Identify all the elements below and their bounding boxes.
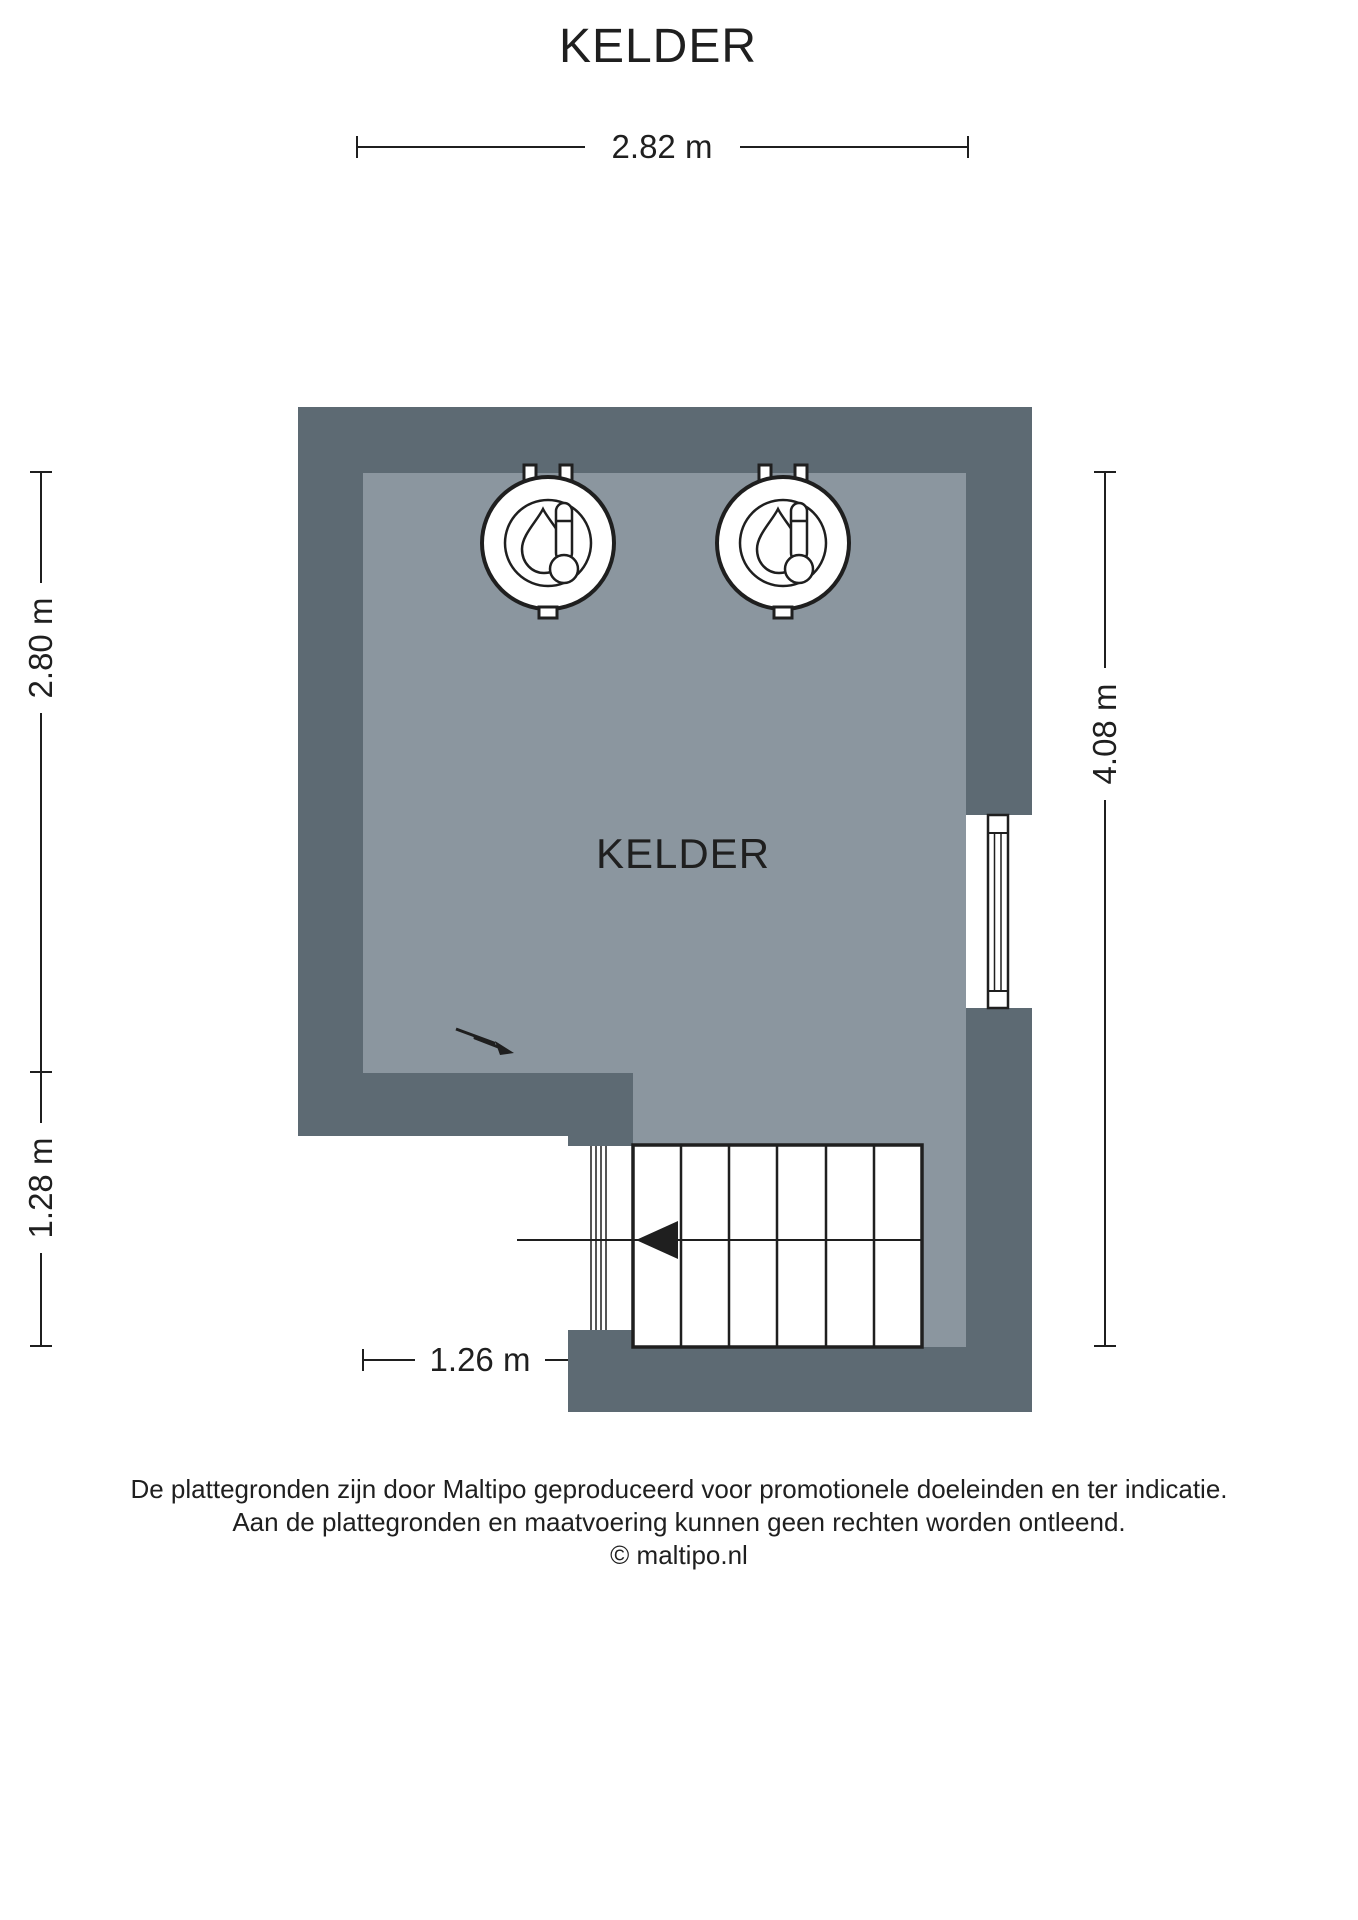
window-symbol (988, 815, 1008, 1008)
dimension-top: 2.82 m (357, 128, 968, 165)
dimension-bottom-left-label: 1.26 m (430, 1341, 531, 1378)
dimension-left-upper-label: 2.80 m (22, 598, 59, 699)
dimension-right: 4.08 m (1086, 472, 1123, 1346)
page-title: KELDER (559, 20, 757, 73)
footer: De plattegronden zijn door Maltipo gepro… (130, 1474, 1227, 1570)
wall-left (298, 473, 363, 1136)
wall-top (298, 407, 1031, 473)
dimension-top-label: 2.82 m (612, 128, 713, 165)
footer-line-1: De plattegronden zijn door Maltipo gepro… (130, 1474, 1227, 1504)
wall-bottom-left-column (568, 1330, 633, 1412)
dimension-left: 2.80 m 1.28 m (22, 472, 59, 1346)
room-label: KELDER (596, 830, 770, 877)
dimension-left-lower-label: 1.28 m (22, 1138, 59, 1239)
wall-right-lower (966, 1008, 1032, 1412)
floorplan-svg: KELDER 2.82 m 2.80 m 1.28 m 4.08 m 1.26 … (0, 0, 1358, 1920)
footer-line-2: Aan de plattegronden en maatvoering kunn… (232, 1507, 1125, 1537)
dimension-right-label: 4.08 m (1086, 684, 1123, 785)
wall-bottom (633, 1347, 966, 1412)
wall-right-upper (966, 407, 1032, 815)
footer-line-3: © maltipo.nl (610, 1540, 748, 1570)
stair-opening (568, 1146, 633, 1330)
floorplan-page: KELDER 2.82 m 2.80 m 1.28 m 4.08 m 1.26 … (0, 0, 1358, 1920)
wall-step (568, 1073, 633, 1146)
